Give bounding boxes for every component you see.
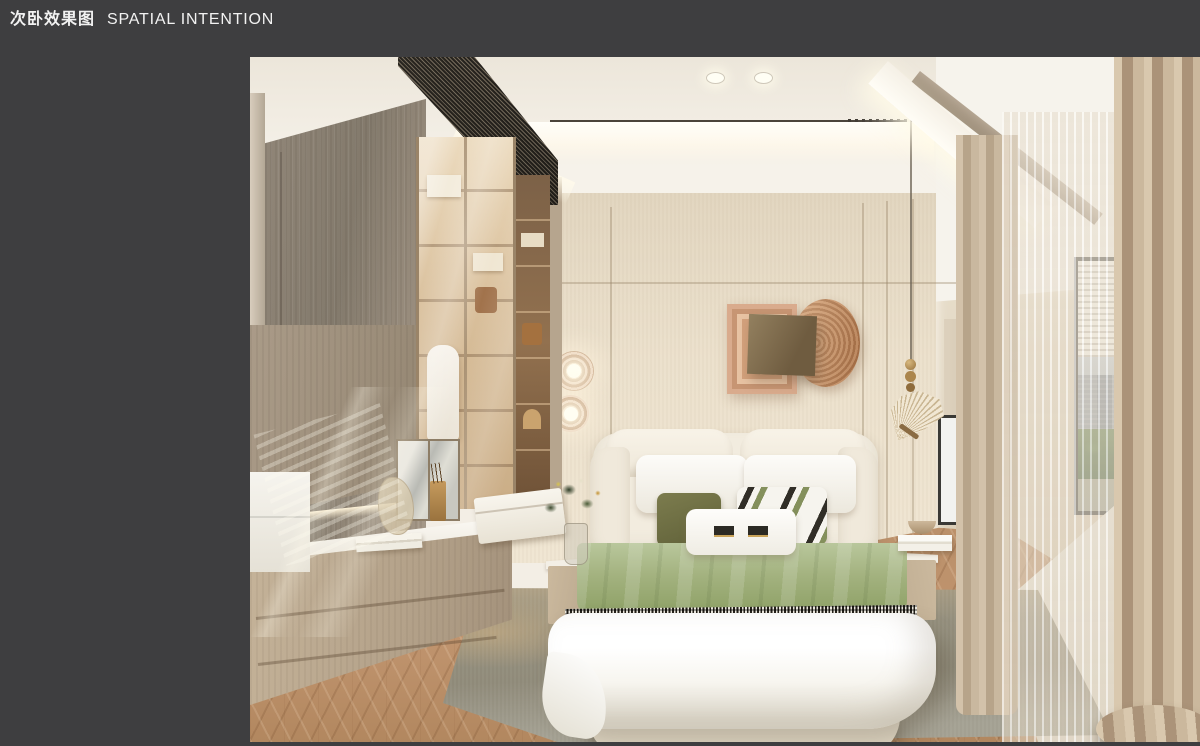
stacked-books [898, 535, 952, 551]
curtain-panel-right [1114, 57, 1200, 742]
slide-title: 次卧效果图 SPATIAL INTENTION [10, 5, 274, 29]
slide-title-english: SPATIAL INTENTION [107, 11, 274, 29]
lumbar-pillow [686, 509, 796, 555]
sheer-curtain [1002, 112, 1130, 742]
reed-diffuser [430, 481, 446, 521]
recessed-downlight [754, 72, 773, 84]
wardrobe-box [473, 253, 503, 271]
white-side-cabinet [250, 472, 310, 572]
pendant-cable [910, 113, 912, 363]
wardrobe-bag [475, 287, 497, 313]
hanging-clothes [427, 345, 459, 440]
slide-title-chinese: 次卧效果图 [10, 5, 95, 29]
ceiling-track-dots [848, 119, 912, 122]
flower-vase [564, 523, 588, 565]
bedroom-render-photo [250, 57, 1200, 742]
pendant-beads [905, 359, 916, 370]
ceiling-cove-light [502, 122, 934, 164]
white-duvet [548, 613, 936, 729]
recessed-downlight [706, 72, 725, 84]
wall-panel-seam [886, 201, 888, 561]
wardrobe-side-panel [550, 177, 562, 522]
wall-panel-seam [912, 199, 914, 561]
shelf-decor [523, 409, 541, 429]
shelf-bag [522, 323, 542, 345]
wall-panel-seam-horizontal [502, 282, 957, 284]
presentation-slide: { "slide": { "title_zh": "次卧效果图", "title… [0, 0, 1200, 746]
wardrobe-box [427, 175, 461, 197]
shelf-box [521, 233, 544, 247]
flower-bouquet [534, 473, 610, 529]
bronze-panel-art [747, 314, 817, 376]
